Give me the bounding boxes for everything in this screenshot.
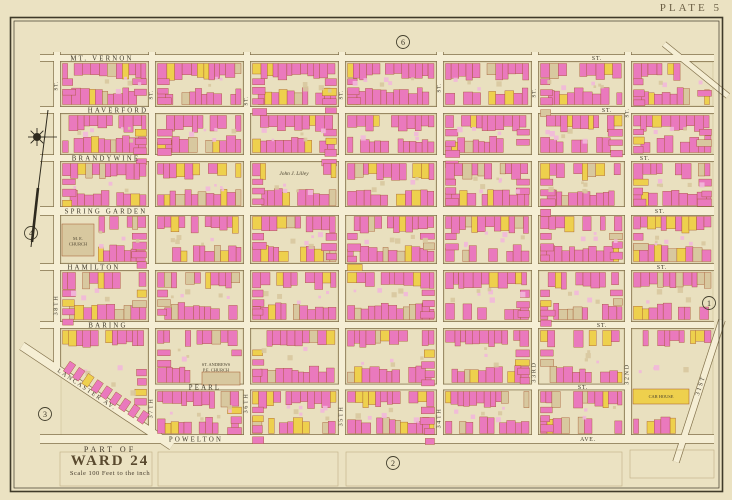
- svg-text:ST.: ST.: [148, 90, 154, 99]
- svg-text:ST.: ST.: [597, 323, 607, 329]
- svg-text:BARING: BARING: [88, 322, 127, 329]
- svg-text:ST.: ST.: [243, 96, 249, 105]
- title-block: PART OF WARD 24 Scale 100 Feet to the in…: [40, 445, 180, 477]
- svg-text:John J. Lilley: John J. Lilley: [279, 171, 309, 177]
- svg-text:MT. VERNON: MT. VERNON: [70, 55, 133, 62]
- svg-text:36TH: 36TH: [242, 393, 249, 414]
- svg-text:ST.: ST.: [53, 81, 59, 90]
- svg-text:M. E.: M. E.: [73, 236, 83, 241]
- svg-text:37TH: 37TH: [147, 398, 154, 419]
- svg-text:ST.: ST.: [602, 108, 612, 114]
- svg-text:32ND: 32ND: [623, 363, 630, 385]
- svg-text:HAVERFORD: HAVERFORD: [88, 107, 148, 114]
- svg-text:AVE.: AVE.: [580, 437, 596, 443]
- svg-text:38TH: 38TH: [52, 295, 59, 316]
- svg-text:ST.: ST.: [657, 265, 667, 271]
- svg-text:6: 6: [401, 38, 405, 47]
- svg-text:ST.: ST.: [578, 385, 588, 391]
- svg-text:ST.: ST.: [436, 83, 442, 92]
- svg-text:HAMILTON: HAMILTON: [67, 264, 120, 271]
- svg-text:POWELTON: POWELTON: [169, 436, 223, 443]
- atlas-page: M. E.CHURCHST. ANDREWSP.E. CHURCHJohn J.…: [0, 0, 732, 500]
- svg-text:ST.: ST.: [338, 90, 344, 99]
- svg-text:ST.: ST.: [531, 88, 537, 97]
- svg-text:34TH: 34TH: [435, 408, 442, 429]
- svg-text:SPRING GARDEN: SPRING GARDEN: [65, 208, 148, 215]
- map-canvas: M. E.CHURCHST. ANDREWSP.E. CHURCHJohn J.…: [0, 0, 732, 500]
- svg-text:ST.: ST.: [640, 156, 650, 162]
- svg-text:ST.: ST.: [655, 209, 665, 215]
- svg-text:ST. ANDREWS: ST. ANDREWS: [202, 362, 231, 367]
- svg-text:33RD: 33RD: [530, 361, 537, 382]
- svg-text:PEARL: PEARL: [189, 384, 222, 391]
- svg-text:BRANDYWINE: BRANDYWINE: [72, 155, 140, 162]
- svg-text:ST.: ST.: [624, 108, 630, 117]
- svg-text:ST.: ST.: [592, 56, 602, 62]
- title-scale: Scale 100 Feet to the inch: [40, 470, 180, 477]
- svg-text:1: 1: [707, 299, 711, 308]
- plate-number: PLATE 5: [660, 2, 722, 14]
- svg-text:35TH: 35TH: [337, 406, 344, 427]
- svg-text:CHURCH: CHURCH: [69, 242, 88, 247]
- svg-text:3: 3: [43, 410, 47, 419]
- title-ward: WARD 24: [40, 453, 180, 470]
- svg-text:CAR HOUSE: CAR HOUSE: [649, 394, 674, 399]
- svg-text:P.E. CHURCH: P.E. CHURCH: [203, 368, 230, 373]
- svg-text:2: 2: [391, 459, 395, 468]
